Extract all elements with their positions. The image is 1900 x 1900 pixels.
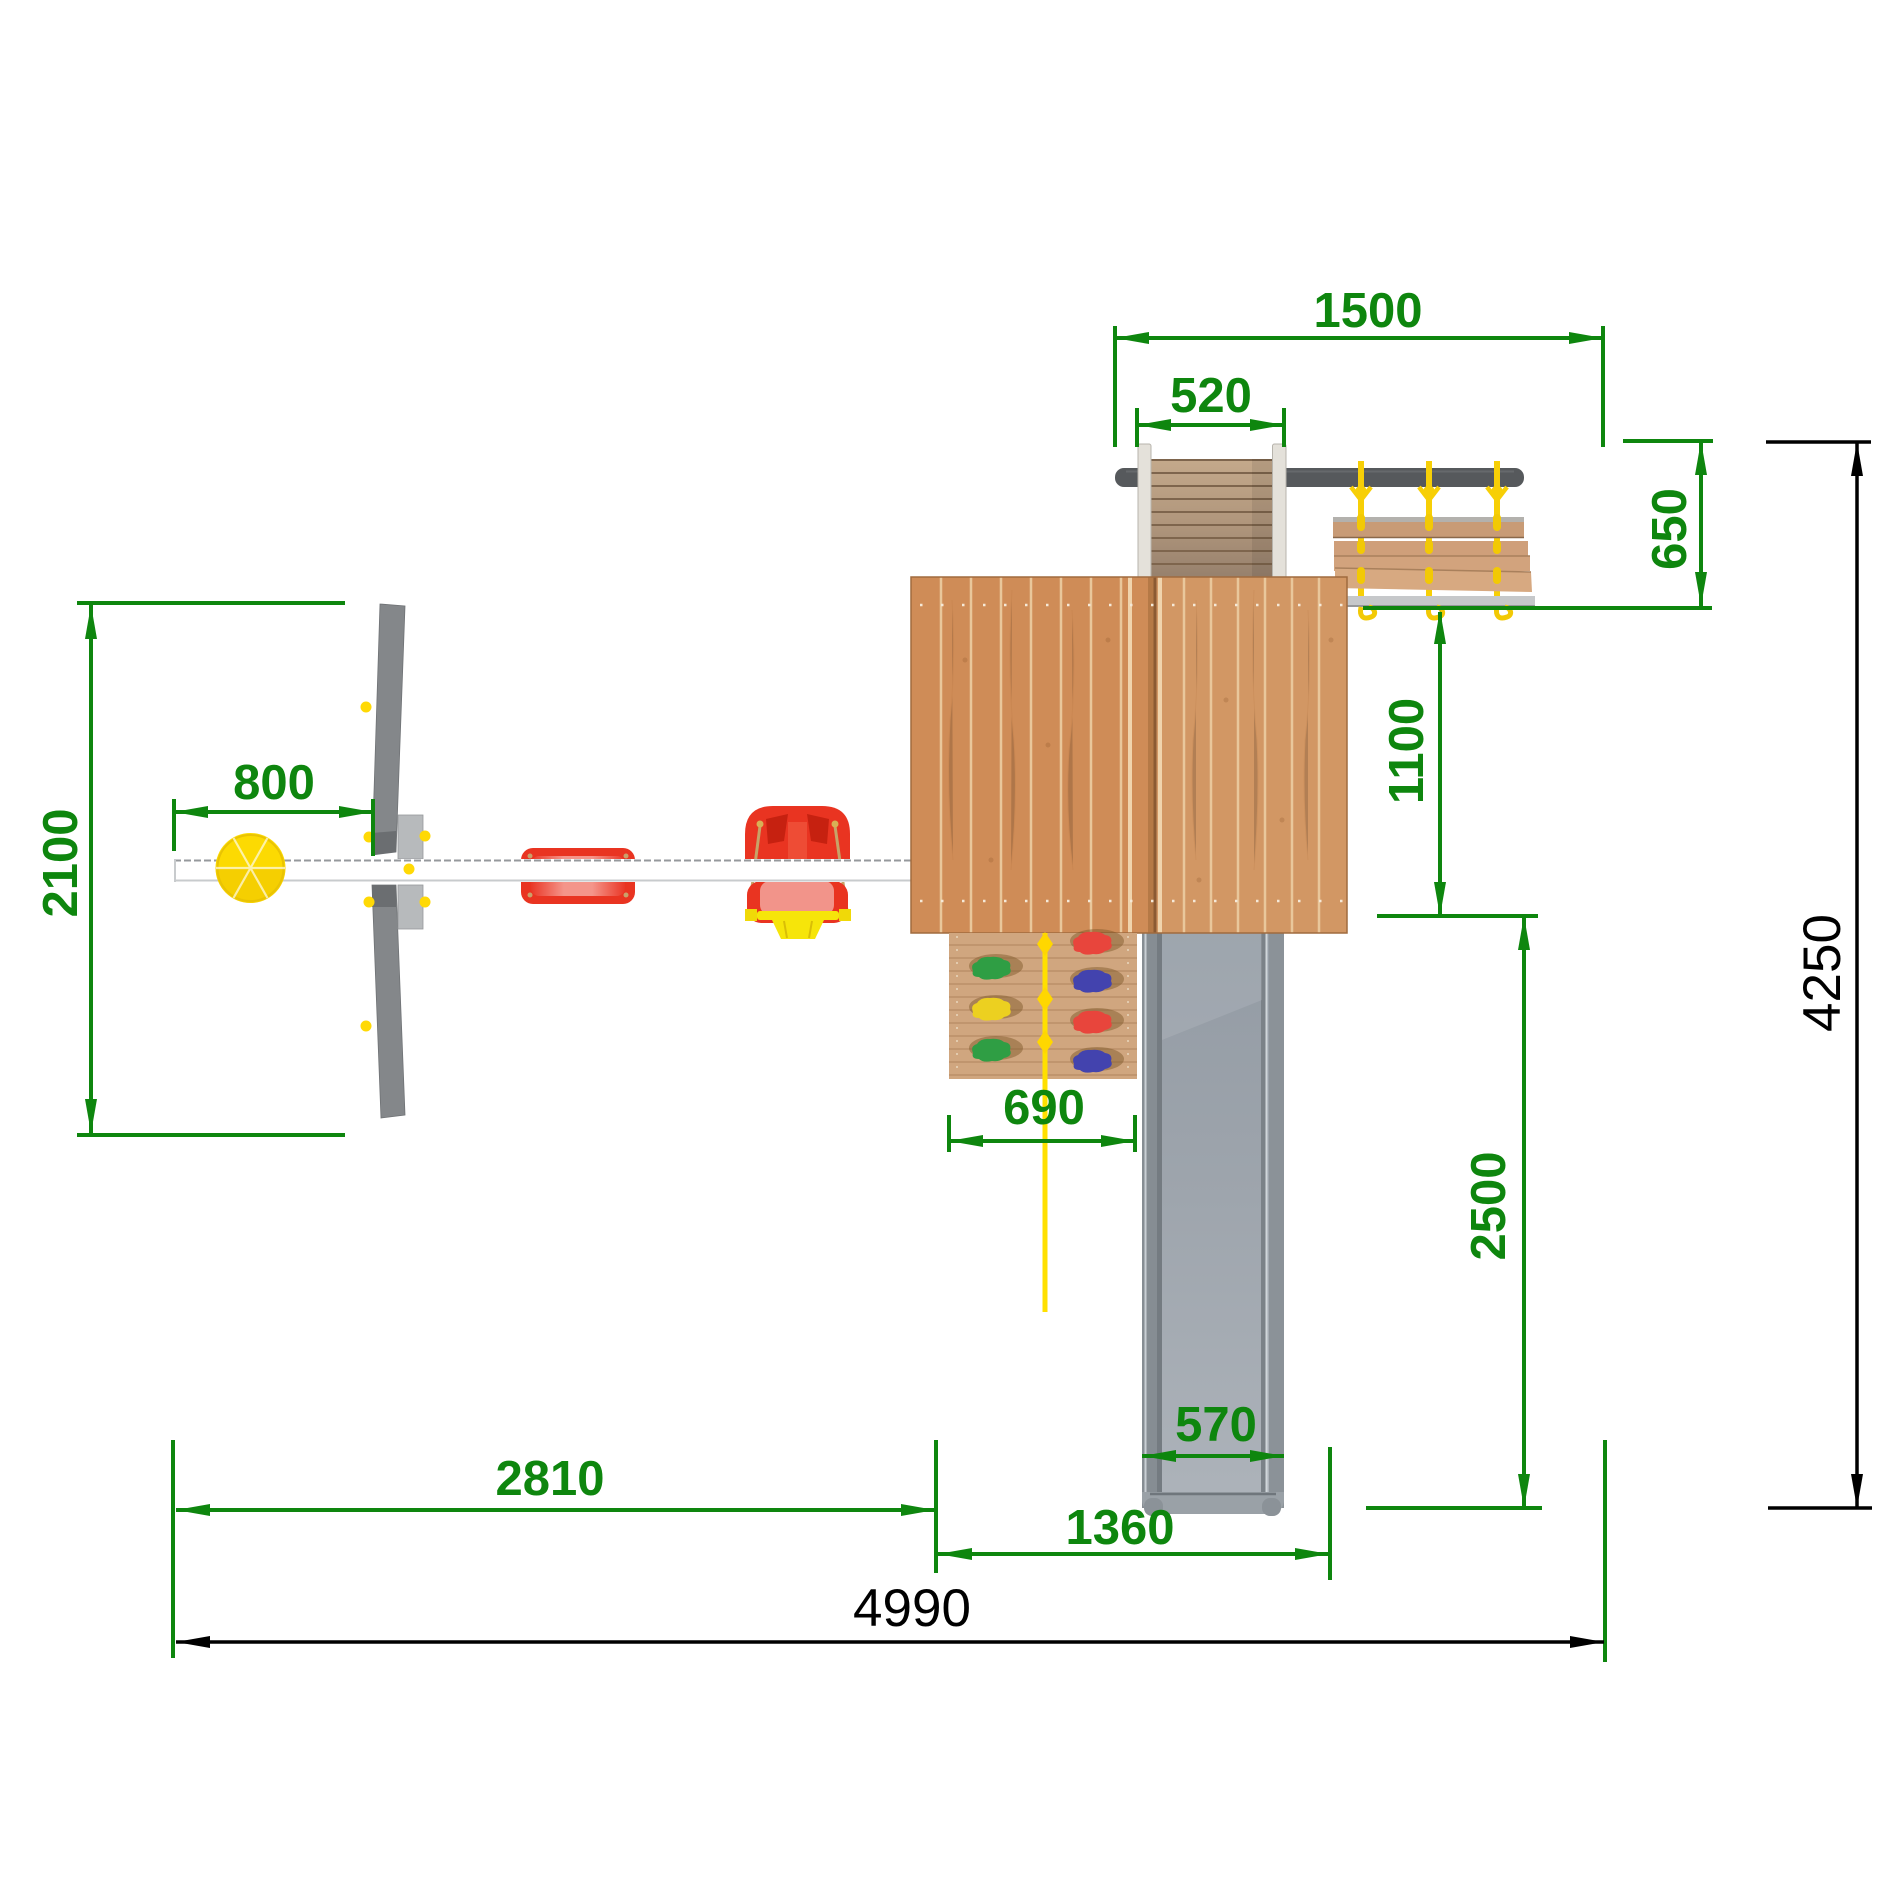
svg-text:690: 690 [1003, 1081, 1085, 1135]
svg-text:2810: 2810 [495, 1452, 604, 1506]
svg-text:1500: 1500 [1313, 284, 1422, 338]
svg-text:1360: 1360 [1065, 1501, 1174, 1555]
svg-text:650: 650 [1643, 488, 1697, 570]
svg-text:520: 520 [1170, 369, 1252, 423]
svg-text:4250: 4250 [1793, 914, 1852, 1032]
svg-text:2100: 2100 [34, 808, 88, 917]
svg-text:2500: 2500 [1462, 1151, 1516, 1260]
svg-text:570: 570 [1175, 1398, 1257, 1452]
svg-text:800: 800 [233, 756, 315, 810]
svg-text:4990: 4990 [853, 1579, 971, 1638]
svg-text:1100: 1100 [1380, 698, 1434, 804]
